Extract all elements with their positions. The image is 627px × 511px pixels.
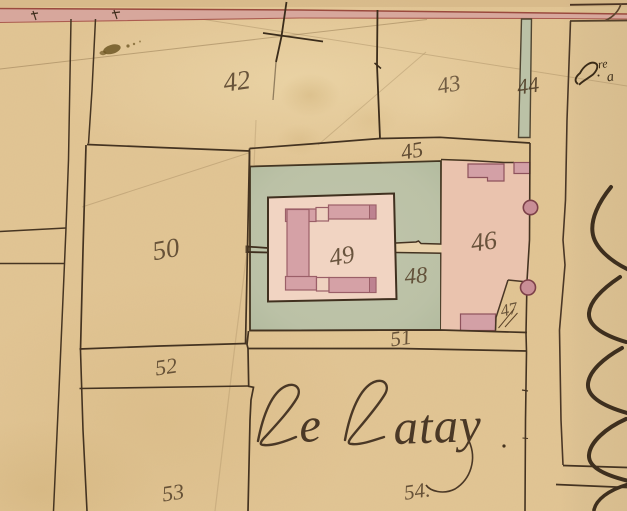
svg-text:45: 45 [399, 136, 425, 164]
svg-text:44: 44 [515, 72, 540, 100]
svg-text:51: 51 [389, 325, 413, 352]
svg-text:49: 49 [327, 241, 357, 272]
svg-text:43: 43 [435, 70, 462, 99]
svg-text:e: e [298, 397, 323, 453]
svg-text:50: 50 [150, 232, 182, 266]
svg-text:54.: 54. [402, 477, 431, 504]
svg-text:53: 53 [160, 479, 185, 507]
svg-text:48: 48 [403, 262, 429, 289]
svg-text:atay: atay [392, 397, 482, 455]
svg-text:46: 46 [469, 225, 499, 257]
svg-text:52: 52 [153, 353, 178, 381]
svg-text:42: 42 [221, 64, 252, 97]
